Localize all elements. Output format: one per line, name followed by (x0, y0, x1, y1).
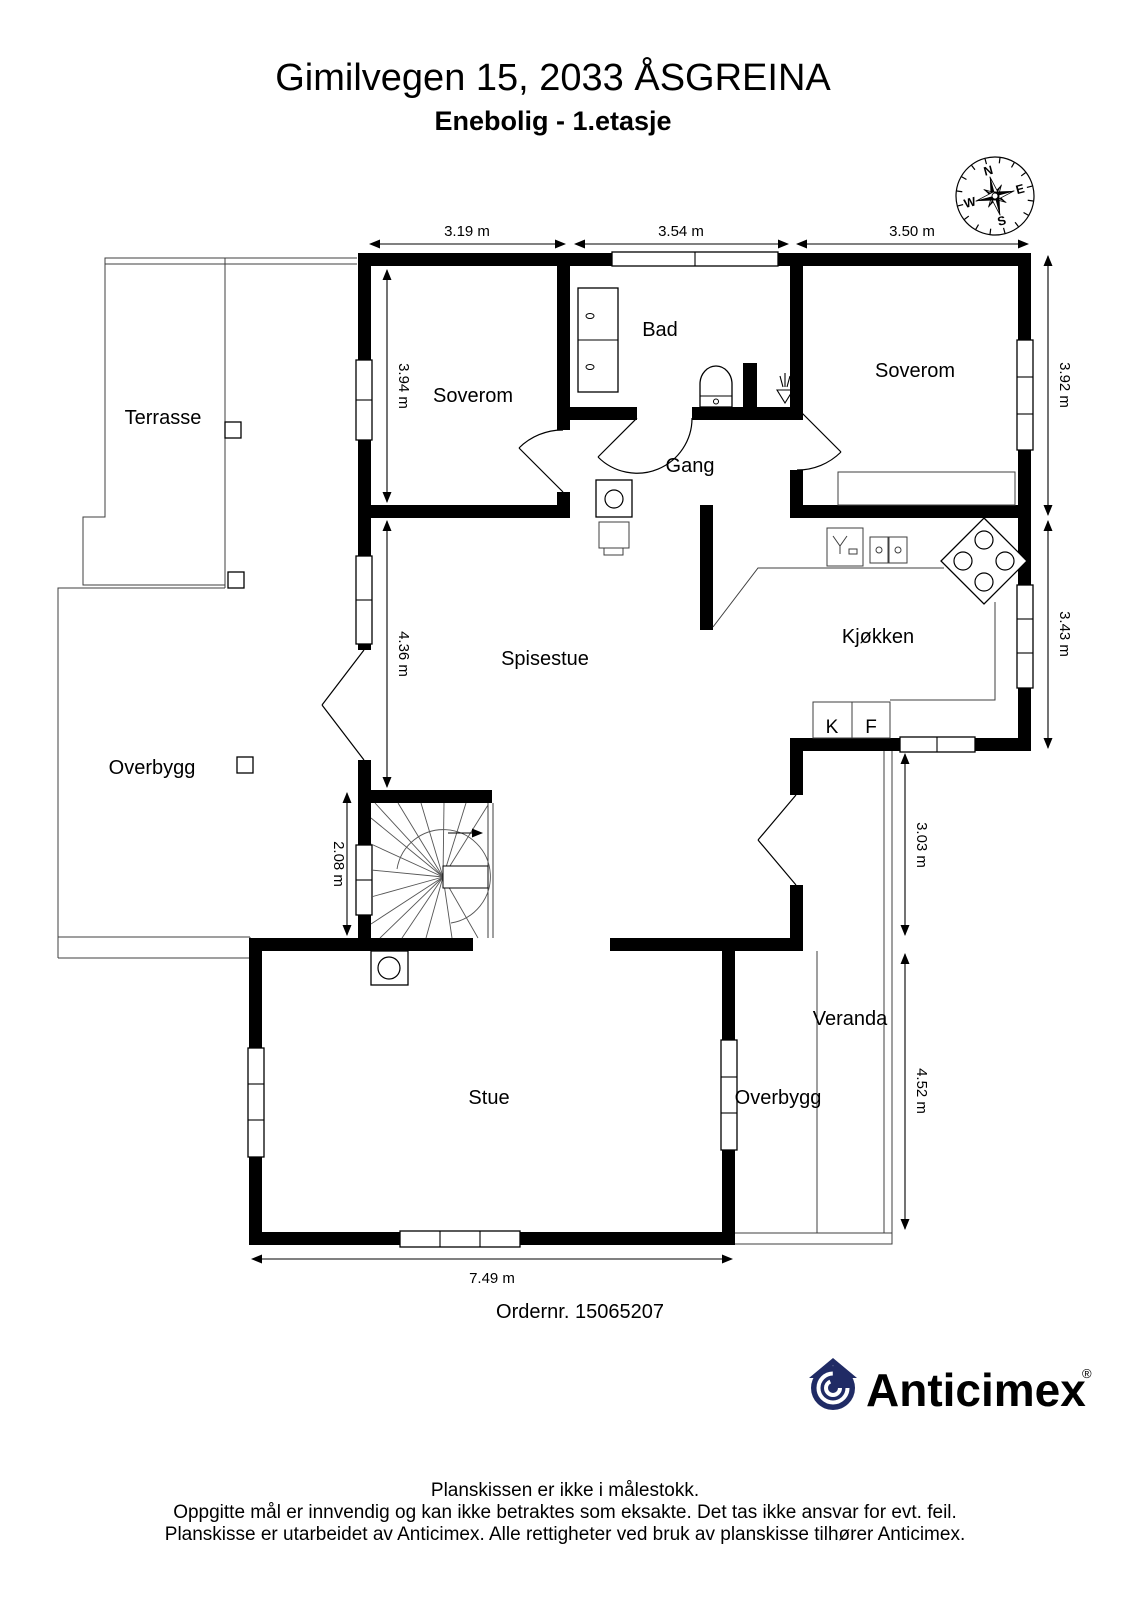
footer-line-1: Planskissen er ikke i målestokk. (431, 1480, 699, 1501)
bedroom-left-window (356, 360, 372, 440)
living-left-window (248, 1048, 264, 1157)
dim-bedroom-left: 3.94 m (395, 363, 412, 409)
compass-south-label: S (996, 213, 1008, 229)
freezer-label: F (865, 717, 877, 738)
footer-disclaimer: Planskissen er ikke i målestokk. Oppgitt… (165, 1480, 965, 1545)
dim-kitchen: 3.43 m (1056, 611, 1073, 657)
room-label-terrace: Terrasse (125, 407, 202, 429)
compass-east-label: E (1014, 181, 1026, 197)
dim-dining: 4.36 m (395, 631, 412, 677)
room-label-dining: Spisestue (501, 648, 589, 670)
dim-veranda-lower: 4.52 m (913, 1068, 930, 1114)
bedroom-right-wardrobe (838, 472, 1015, 505)
bedroom-left-door (519, 430, 563, 492)
double-sink-icon (870, 537, 907, 563)
room-label-bathroom: Bad (642, 319, 678, 341)
porch-posts (225, 422, 253, 773)
registered-mark: ® (1082, 1366, 1092, 1381)
fridge-label: K (826, 717, 839, 738)
order-number: Ordernr. 15065207 (496, 1301, 664, 1323)
footer-line-2: Oppgitte mål er innvendig og kan ikke be… (173, 1502, 957, 1523)
stair-winder-icon (371, 803, 493, 938)
bath-cabinet-icon (578, 288, 618, 392)
brand-name: Anticimex (866, 1364, 1086, 1416)
bedroom-right-door (797, 408, 841, 470)
anticimex-house-icon (809, 1358, 857, 1410)
room-label-covered-left: Overbygg (109, 757, 196, 779)
room-label-kitchen: Kjøkken (842, 626, 914, 648)
compass-north-label: N (982, 163, 994, 179)
dim-top-middle: 3.54 m (658, 223, 704, 240)
room-label-bedroom-left: Soverom (433, 385, 513, 407)
dining-french-doors (322, 650, 364, 760)
compass-rose-icon: N E S W (947, 148, 1043, 244)
kitchen-bottom-window (900, 737, 975, 752)
stove-icon (941, 518, 1027, 604)
dim-bedroom-right: 3.92 m (1056, 362, 1073, 408)
sink-icon (827, 528, 863, 566)
toilet-icon (700, 366, 732, 407)
room-label-covered-right: Overbygg (735, 1087, 822, 1109)
brand-logo: Anticimex ® (809, 1358, 1092, 1416)
page-title: Gimilvegen 15, 2033 ÅSGREINA (275, 55, 831, 99)
wood-stove-icon (596, 480, 632, 555)
dim-living-width: 7.49 m (469, 1270, 515, 1287)
kitchen-side-window (1017, 585, 1033, 688)
footer-line-3: Planskisse er utarbeidet av Anticimex. A… (165, 1524, 965, 1545)
room-label-living: Stue (468, 1087, 509, 1109)
veranda-french-doors (758, 795, 796, 885)
fireplace-icon (371, 951, 408, 985)
floorplan-page: Gimilvegen 15, 2033 ÅSGREINA Enebolig - … (0, 0, 1131, 1600)
living-bottom-window (400, 1231, 520, 1247)
bathroom-window (612, 252, 778, 266)
bedroom-right-window (1017, 340, 1033, 450)
dim-top-right: 3.50 m (889, 223, 935, 240)
room-label-hallway: Gang (666, 455, 715, 477)
compass-west-label: W (962, 194, 977, 211)
dim-top-left: 3.19 m (444, 223, 490, 240)
room-label-bedroom-right: Soverom (875, 360, 955, 382)
page-subtitle: Enebolig - 1.etasje (434, 106, 671, 136)
dim-veranda-upper: 3.03 m (913, 822, 930, 868)
veranda-outline (735, 751, 892, 1244)
dim-stairs: 2.08 m (330, 841, 347, 887)
room-label-veranda: Veranda (813, 1008, 888, 1030)
dining-window (356, 556, 372, 644)
stairs-window (356, 845, 372, 915)
